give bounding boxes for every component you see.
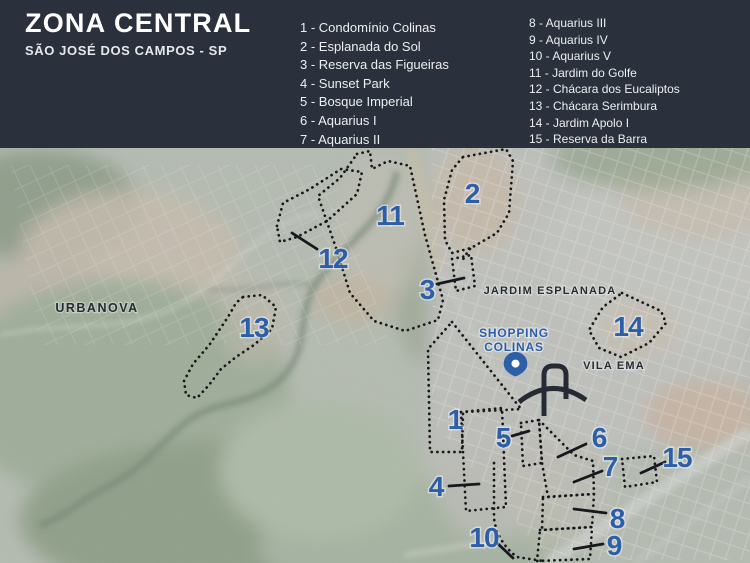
- marker-2: 2: [465, 178, 480, 209]
- marker-1: 1: [448, 404, 463, 435]
- urbanova-label: URBANOVA: [55, 301, 138, 315]
- map-terrain: [0, 130, 750, 563]
- marker-4: 4: [429, 471, 445, 502]
- legend-item-6: 6 - Aquarius I: [300, 112, 449, 131]
- legend-column-2: 8 - Aquarius III 9 - Aquarius IV 10 - Aq…: [529, 15, 680, 148]
- marker-10: 10: [469, 522, 499, 553]
- legend-item-3: 3 - Reserva das Figueiras: [300, 56, 449, 75]
- legend-item-2: 2 - Esplanada do Sol: [300, 38, 449, 57]
- marker-7: 7: [603, 451, 618, 482]
- vila-ema-label: VILA EMA: [583, 360, 645, 372]
- legend-item-9: 9 - Aquarius IV: [529, 32, 680, 49]
- title-block: ZONA CENTRAL SÃO JOSÉ DOS CAMPOS - SP: [25, 9, 251, 58]
- legend-item-1: 1 - Condomínio Colinas: [300, 19, 449, 38]
- legend-item-4: 4 - Sunset Park: [300, 75, 449, 94]
- legend-item-12: 12 - Chácara dos Eucaliptos: [529, 81, 680, 98]
- legend-item-11: 11 - Jardim do Golfe: [529, 65, 680, 82]
- legend-column-1: 1 - Condomínio Colinas 2 - Esplanada do …: [300, 19, 449, 149]
- marker-14: 14: [613, 311, 644, 342]
- shopping-colinas-label-line1: SHOPPING: [479, 326, 549, 340]
- legend-item-7: 7 - Aquarius II: [300, 131, 449, 150]
- marker-13: 13: [239, 312, 269, 343]
- marker-3: 3: [420, 274, 435, 305]
- marker-11: 11: [376, 200, 404, 231]
- marker-9: 9: [607, 530, 622, 561]
- header: ZONA CENTRAL SÃO JOSÉ DOS CAMPOS - SP 1 …: [0, 0, 750, 148]
- legend-item-10: 10 - Aquarius V: [529, 48, 680, 65]
- page-subtitle: SÃO JOSÉ DOS CAMPOS - SP: [25, 43, 251, 58]
- legend-item-8: 8 - Aquarius III: [529, 15, 680, 32]
- jardim-esplanada-label: JARDIM ESPLANADA: [484, 285, 617, 297]
- marker-12: 12: [318, 243, 348, 274]
- shopping-colinas-label-line2: COLINAS: [484, 340, 544, 354]
- legend-item-14: 14 - Jardim Apolo I: [529, 115, 680, 132]
- legend-item-13: 13 - Chácara Serimbura: [529, 98, 680, 115]
- page-title: ZONA CENTRAL: [25, 9, 251, 39]
- marker-6: 6: [592, 422, 607, 453]
- legend-item-15: 15 - Reserva da Barra: [529, 131, 680, 148]
- marker-5: 5: [496, 422, 511, 453]
- marker-15: 15: [662, 442, 692, 473]
- zona-central-infographic: 1 2 3 4 5 6 7 8 9 10 11 12 13 14 15 URBA…: [0, 0, 750, 563]
- legend-item-5: 5 - Bosque Imperial: [300, 93, 449, 112]
- marker-line-4: [449, 484, 479, 486]
